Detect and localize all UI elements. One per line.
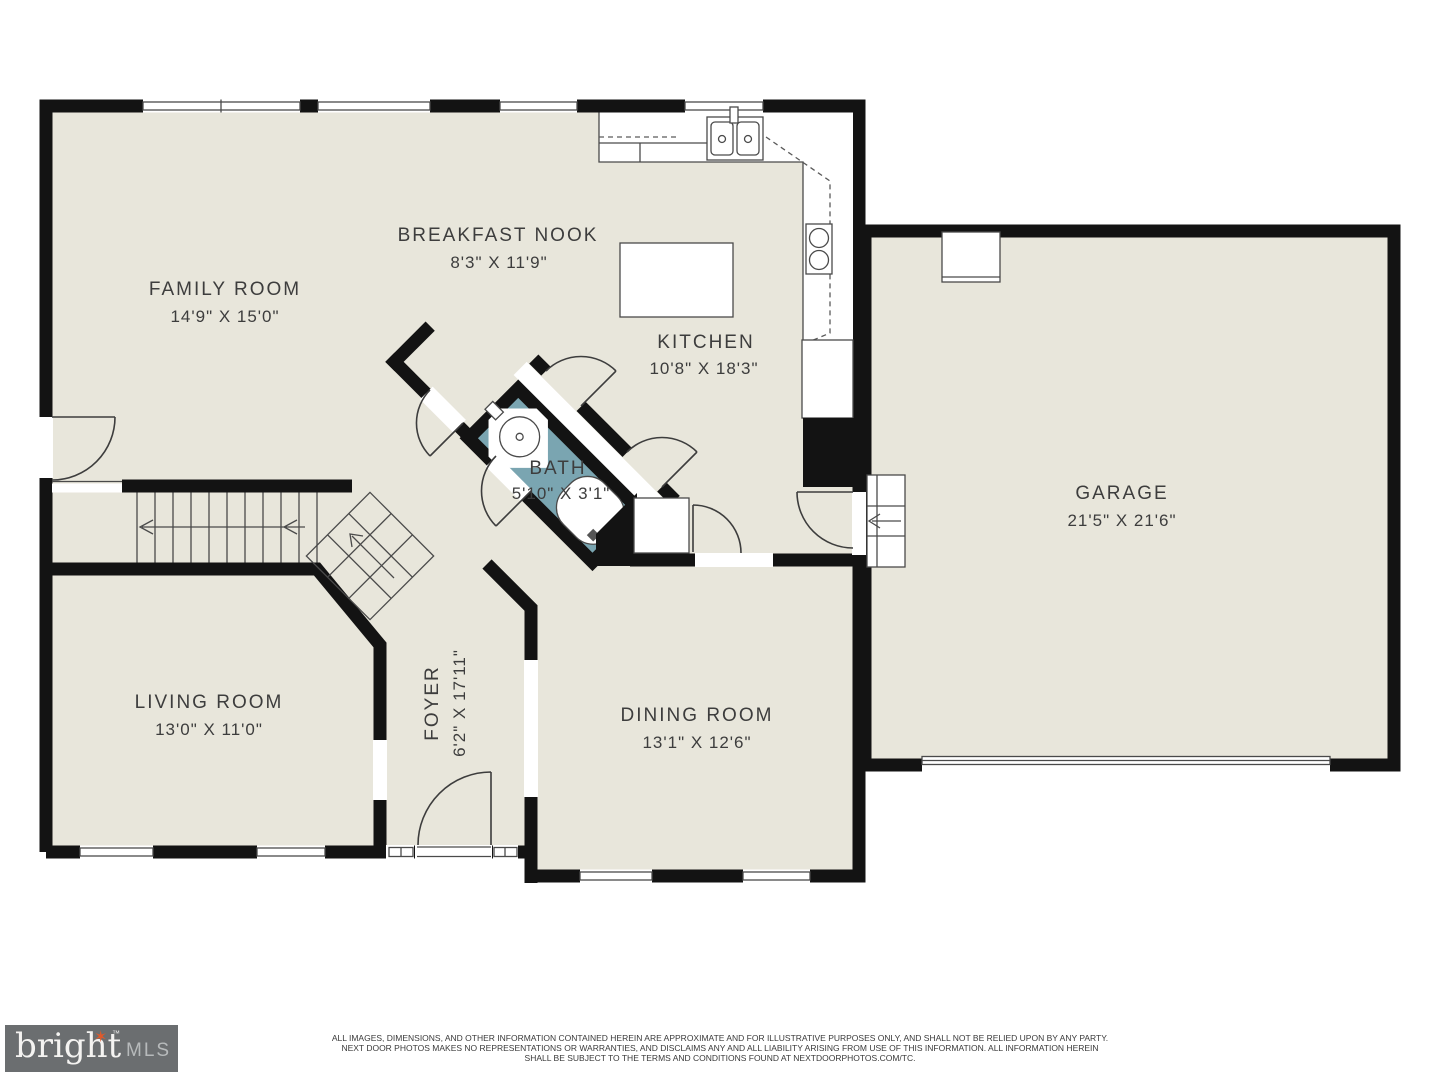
sink-drain	[745, 136, 752, 143]
foyer-dims: 6'2" X 17'11"	[450, 649, 469, 757]
dining-room-label: DINING ROOM	[621, 705, 774, 726]
family-door-gap	[39, 417, 53, 478]
dining-room-dims: 13'1" X 12'6"	[642, 733, 751, 752]
kitchen-island	[620, 243, 733, 317]
garage-door-gap	[852, 492, 866, 555]
garage-label: GARAGE	[1075, 483, 1168, 504]
living-room-label: LIVING ROOM	[135, 692, 284, 713]
stove	[806, 224, 832, 274]
living-foyer-opening	[373, 740, 387, 800]
disclaimer-line-3: SHALL BE SUBJECT TO THE TERMS AND CONDIT…	[0, 1053, 1440, 1063]
garage-dims: 21'5" X 21'6"	[1067, 511, 1176, 530]
floorplan-drawing: FAMILY ROOM 14'9" X 15'0" BREAKFAST NOOK…	[0, 0, 1440, 1080]
floorplan-page: FAMILY ROOM 14'9" X 15'0" BREAKFAST NOOK…	[0, 0, 1440, 1080]
disclaimer-text: ALL IMAGES, DIMENSIONS, AND OTHER INFORM…	[0, 1033, 1440, 1063]
kitchen-chase	[803, 418, 859, 487]
foyer-dining-opening	[524, 660, 538, 797]
foyer-label: FOYER	[422, 665, 443, 740]
stair-head-opening	[52, 484, 122, 493]
hall-dining-opening	[695, 553, 773, 567]
living-room-dims: 13'0" X 11'0"	[155, 720, 263, 739]
family-room-label: FAMILY ROOM	[149, 279, 301, 300]
breakfast-nook-label: BREAKFAST NOOK	[398, 225, 599, 246]
disclaimer-line-1: ALL IMAGES, DIMENSIONS, AND OTHER INFORM…	[0, 1033, 1440, 1043]
breakfast-nook-dims: 8'3" X 11'9"	[450, 253, 547, 272]
sink-faucet	[730, 107, 738, 123]
kitchen-label: KITCHEN	[657, 332, 754, 353]
sink-drain	[719, 136, 726, 143]
family-room-dims: 14'9" X 15'0"	[170, 307, 279, 326]
disclaimer-line-2: NEXT DOOR PHOTOS MAKES NO REPRESENTATION…	[0, 1043, 1440, 1053]
hall-closet	[634, 498, 689, 553]
utility-unit	[942, 232, 1000, 282]
kitchen-dims: 10'8" X 18'3"	[649, 359, 758, 378]
bath-dims: 5'10" X 3'1"	[512, 484, 611, 503]
base-cabinet	[802, 340, 853, 418]
bath-label: BATH	[529, 458, 586, 479]
